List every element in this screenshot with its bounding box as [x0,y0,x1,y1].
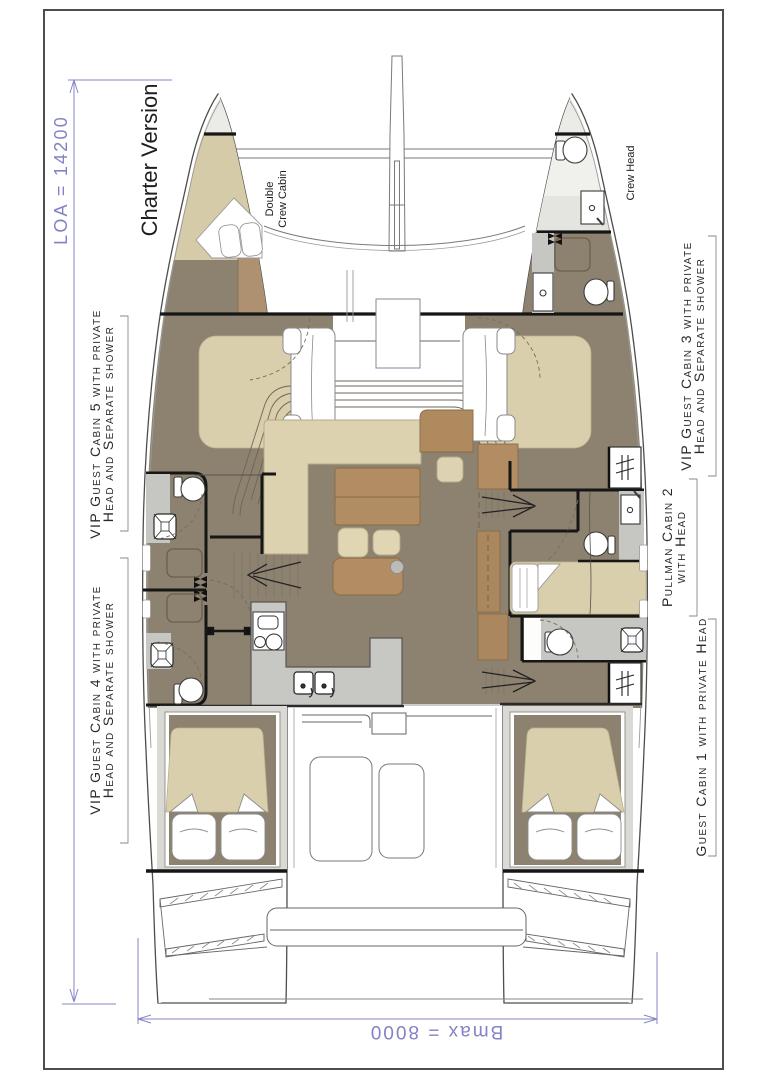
svg-text:Head and Separate shower: Head and Separate shower [691,258,707,455]
svg-text:Crew Cabin: Crew Cabin [277,170,289,227]
svg-text:Bmax = 8000: Bmax = 8000 [369,1021,504,1042]
svg-text:Charter Version: Charter Version [137,84,162,237]
svg-text:LOA = 14200: LOA = 14200 [51,115,71,245]
svg-text:Head and Separate shower: Head and Separate shower [100,326,116,523]
svg-text:with Head: with Head [672,511,688,584]
svg-text:Double: Double [264,182,276,217]
svg-text:Head and Separate shower: Head and Separate shower [100,602,116,799]
svg-text:Guest Cabin 1 with private Hea: Guest Cabin 1 with private Head [693,617,709,856]
svg-text:Crew Head: Crew Head [625,145,637,200]
